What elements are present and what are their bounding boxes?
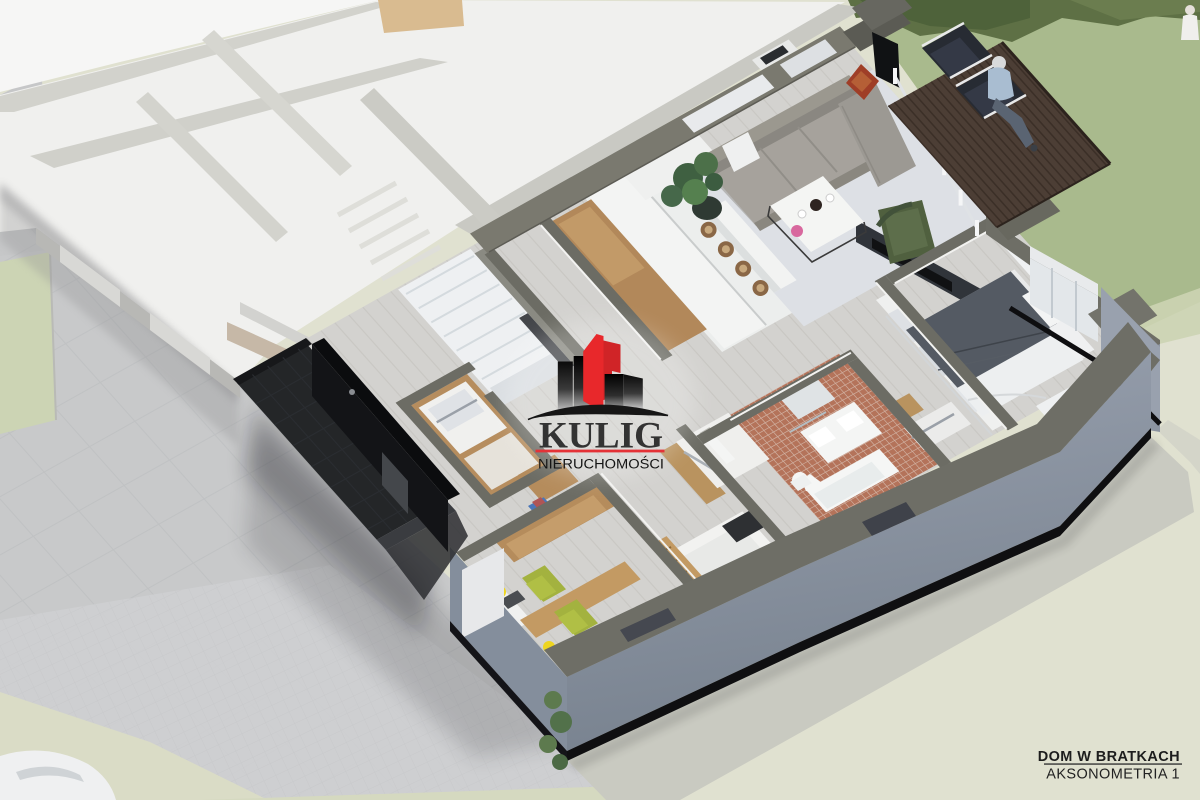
svg-text:NIERUCHOMOŚCI: NIERUCHOMOŚCI: [538, 455, 664, 473]
svg-text:DOM W BRATKACH: DOM W BRATKACH: [1038, 749, 1180, 765]
svg-text:AKSONOMETRIA 1: AKSONOMETRIA 1: [1046, 767, 1180, 783]
